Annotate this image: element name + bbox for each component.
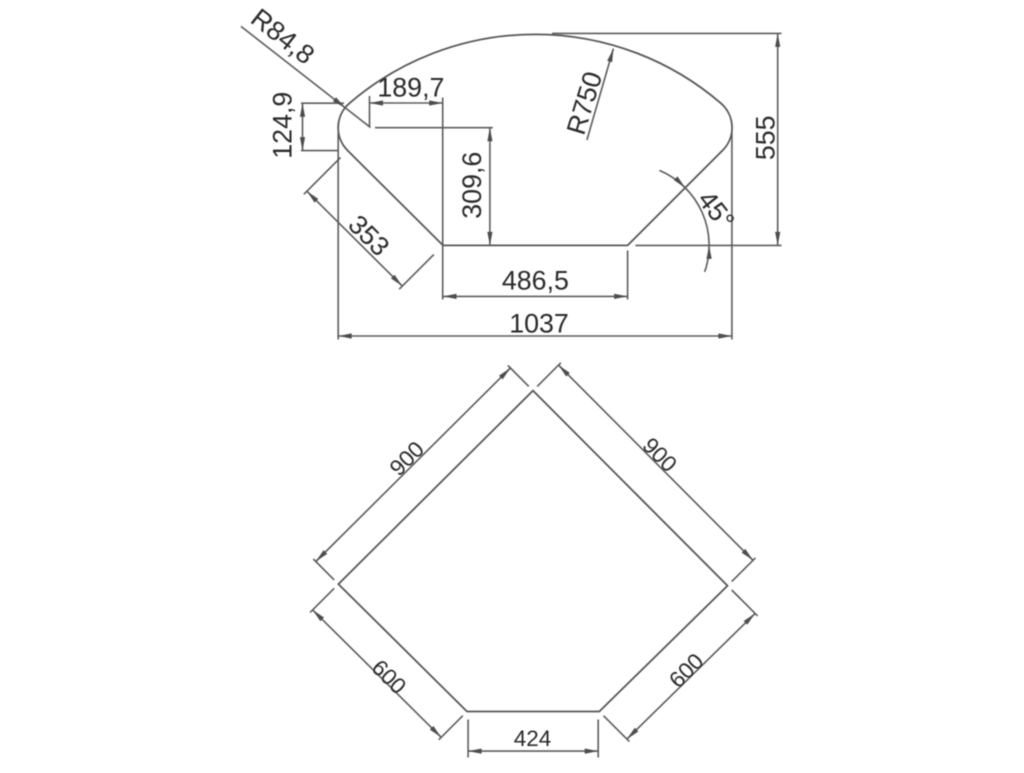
svg-text:1037: 1037 xyxy=(509,309,569,339)
svg-text:189,7: 189,7 xyxy=(377,73,444,103)
svg-text:124,9: 124,9 xyxy=(268,92,298,159)
svg-text:486,5: 486,5 xyxy=(502,266,569,296)
svg-text:309,6: 309,6 xyxy=(457,152,487,219)
svg-text:424: 424 xyxy=(514,726,552,751)
svg-text:555: 555 xyxy=(751,115,781,160)
